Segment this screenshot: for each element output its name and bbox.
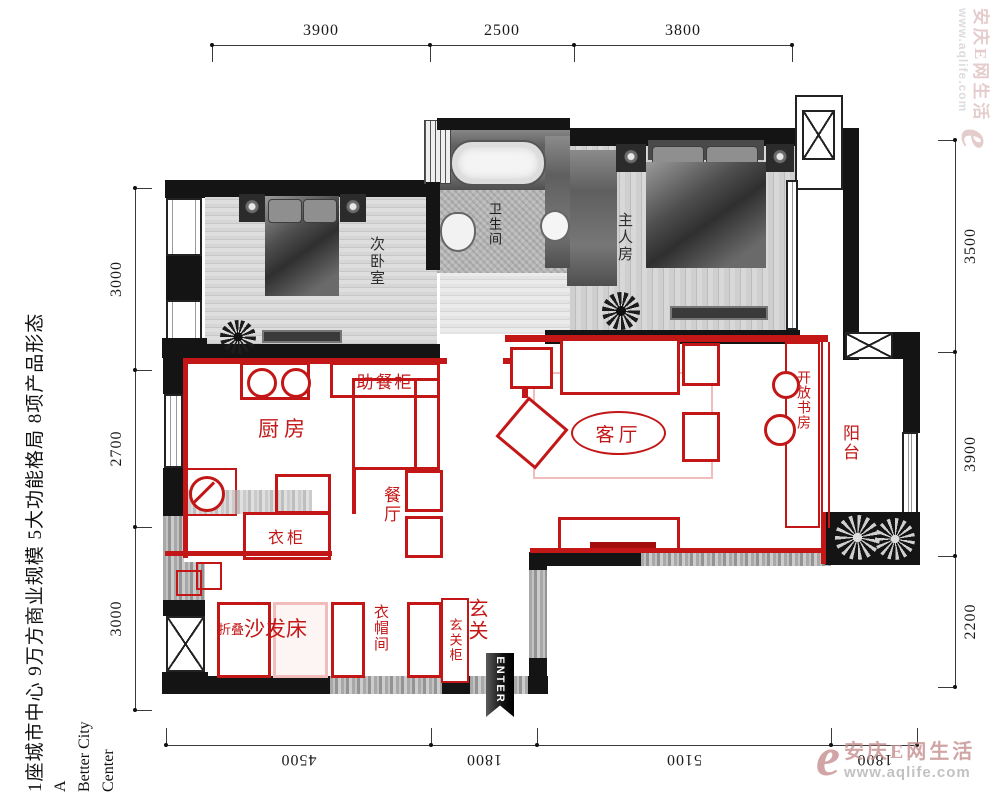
room-label-folding: 折叠 [218,619,244,638]
wall-left-corner [165,180,205,198]
study-desk-double-line [821,342,830,528]
room-label-balcony: 阳台 [841,424,858,462]
dim-bottom-value-3: 5100 [537,750,831,768]
dim-bottom-dot-1 [164,743,168,747]
dim-bottom-dot-3 [535,743,539,747]
small-box-2 [176,570,202,596]
dim-bottom-value-1: 4500 [166,750,431,768]
secondary-bed-pillow-1 [268,199,302,223]
sofa-main [560,338,680,395]
wall-bottom-a [162,672,208,694]
corridor-floor [440,268,572,334]
master-nightstand-2 [766,144,794,172]
room-label-kitchen: 厨房 [258,413,310,443]
window-kitchen [164,394,183,468]
wall-bottomleft-a [163,600,205,616]
side-english-line1: A [52,780,70,792]
dim-right-value-3: 2200 [962,556,980,687]
watermark-logo-top: e [958,128,995,148]
wall-balcony-topright [893,332,920,359]
side-table-right-1 [682,343,720,386]
side-english-line3: Center [100,749,118,792]
master-nightstand-1 [616,144,646,172]
threshold-1 [330,676,442,694]
room-label-bathroom: 卫生间 [488,202,501,247]
dim-right-value-2: 3900 [962,352,980,556]
cloakroom-box-1 [331,602,365,678]
dim-right-dot-2 [953,350,957,354]
shaft-xbox [802,110,835,160]
planter-plant-1 [835,515,880,560]
cloakroom-box-2 [407,602,442,678]
dim-left-dot-3 [133,525,137,529]
bath-master-divider [545,136,570,268]
wall-kitchen-left-b [163,468,184,516]
window-box-bottomleft [166,616,205,672]
side-english-line2: Better City [76,721,94,792]
dim-left-tick-4 [135,710,152,711]
wall-hall-bottom [529,658,547,694]
wall-right-master [843,128,859,360]
watermark-brand-top: 安庆E网生活 [970,8,995,122]
dim-right-value-1: 3500 [962,140,980,352]
dim-top-tick-1 [212,45,213,62]
room-label-master-bedroom: 主人房 [616,212,631,263]
dim-right-dot-4 [953,685,957,689]
dim-top-dot-4 [790,43,794,47]
wall-hall-stone [529,568,547,660]
dim-left-value-3: 3000 [108,527,126,710]
dim-left-value-2: 2700 [108,370,126,527]
kitchen-cabinet-divider [414,380,417,468]
room-label-wardrobe: 衣柜 [268,524,306,548]
toilet [440,212,476,252]
stove-burner-2 [281,368,311,398]
master-bed [646,162,766,268]
watermark-brand-bottom: 安庆E网生活 [844,735,975,764]
wall-bottom-b [207,676,330,694]
dim-top-value-2: 2500 [430,22,574,40]
dim-left-dot-4 [133,708,137,712]
kitchen-left-line [183,360,188,558]
living-room-ellipse: 客厅 [571,411,666,455]
secondary-bench [262,330,342,343]
dim-top-value-3: 3800 [574,22,792,40]
watermark-bottom-right: e 安庆E网生活 www.aqlife.com [816,735,975,781]
window-master-right [786,180,798,330]
dim-right-line [955,140,956,687]
room-label-entry-cabinet: 玄关柜 [449,618,462,663]
bathtub [450,140,546,186]
secondary-nightstand-2 [340,194,366,222]
master-bench [670,306,768,320]
secondary-plant [220,320,256,354]
room-label-cloakroom: 衣帽间 [372,604,387,652]
wall-unit-bottom-stone [641,552,831,566]
dim-top-tick-3 [574,45,575,62]
dim-top-dot-1 [210,43,214,47]
window-left-1 [166,198,202,256]
dim-left-line [135,188,136,710]
armchair-left [510,347,553,389]
stove-burner-1 [247,368,277,398]
laundry-top-line [165,551,332,556]
dim-left-tick-2 [135,370,152,371]
watermark-logo-bottom: e [816,736,840,779]
watermark-top-right: 安庆E网生活 www.aqlife.com e [956,8,995,149]
dining-table-1 [405,470,443,512]
wall-kitchen-left-a [163,348,184,394]
floor-plan-page: 助餐柜 衣柜 客厅 玄关柜 次卧室 卫生间 主人房 厨房 餐厅 开放书房 阳台 … [0,0,1000,800]
dim-bottom-dot-2 [429,743,433,747]
wall-unit-bottom-mid [541,552,641,566]
room-label-sofa-bed: 沙发床 [244,613,307,643]
dim-left-value-1: 3000 [108,188,126,370]
kitchen-sink [189,476,225,512]
dim-bottom-value-2: 1800 [431,750,537,768]
study-chair-2 [764,414,796,446]
wall-top-bathroom [437,118,570,130]
dim-top-value-1: 3900 [212,22,430,40]
balcony-xbox [845,332,893,359]
bottom-long-red-line [530,548,825,553]
enter-ribbon: ENTER [486,653,514,717]
dim-top-line [212,45,792,46]
enter-ribbon-label: ENTER [494,656,506,703]
kitchen-vline [352,468,356,514]
dim-top-dot-2 [428,43,432,47]
wall-balcony-right [903,359,920,433]
kitchen-counter-low [275,474,331,514]
dining-table-2 [405,516,443,558]
watermark-url-bottom: www.aqlife.com [844,764,975,781]
dim-left-dot-1 [133,186,137,190]
dim-left-tick-1 [135,188,152,189]
dim-top-dot-3 [572,43,576,47]
master-plant [602,292,640,330]
watermark-url-top: www.aqlife.com [956,8,970,122]
dim-left-dot-2 [133,368,137,372]
dim-left-tick-3 [135,527,152,528]
dim-top-tick-4 [792,45,793,62]
dim-bottom-line [166,745,918,746]
room-label-open-study: 开放书房 [795,370,809,430]
room-label-living: 客厅 [595,420,641,447]
master-wardrobe [567,150,617,286]
secondary-nightstand-1 [239,194,265,222]
planter-plant-2 [875,518,915,560]
room-label-sofa-bed-group: 折叠 沙发床 [218,613,324,643]
kitchen-cabinet-tall [352,378,440,470]
side-table-right-2 [682,412,720,462]
wall-left-a [166,256,202,300]
side-slogan: 1座城市中心 9万方商业规模 5大功能格局 8项产品形态 [20,313,47,792]
secondary-bed-pillow-2 [303,199,337,223]
room-label-secondary-bedroom: 次卧室 [368,236,383,287]
room-label-entry: 玄关 [466,598,486,642]
planter-red-edge [821,512,826,564]
room-label-dining: 餐厅 [382,486,399,524]
wall-secondary-bath-divider [426,182,440,270]
dim-top-tick-2 [430,45,431,62]
dim-right-dot-3 [953,554,957,558]
bathroom-sink [540,210,570,242]
